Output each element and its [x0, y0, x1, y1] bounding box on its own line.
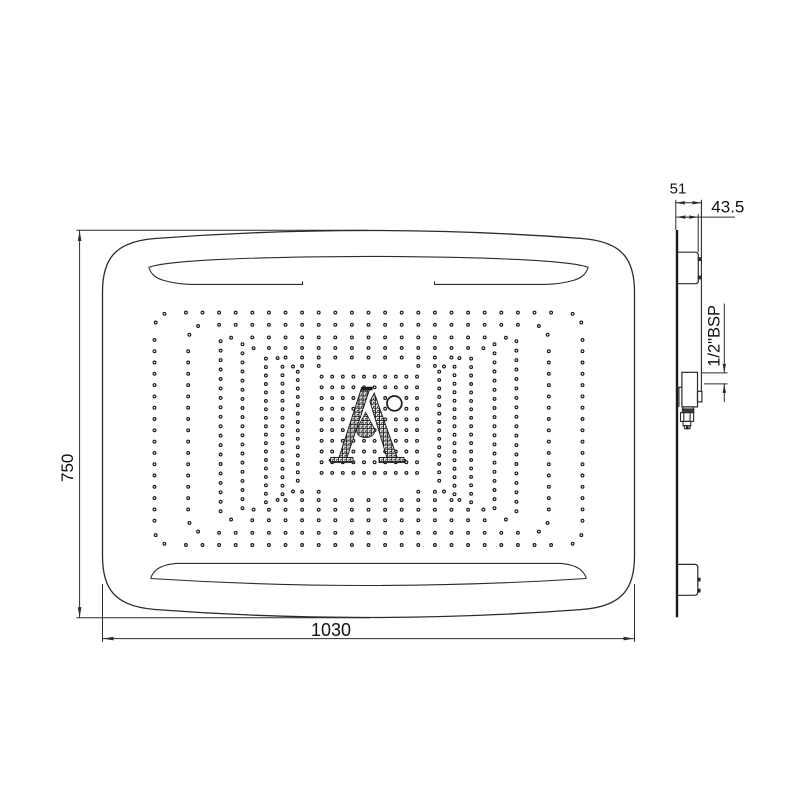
svg-text:51: 51 [670, 181, 687, 198]
svg-text:1/2"BSP: 1/2"BSP [706, 305, 724, 367]
svg-text:750: 750 [58, 454, 77, 482]
svg-text:1030: 1030 [311, 620, 351, 640]
svg-text:43.5: 43.5 [711, 198, 744, 217]
